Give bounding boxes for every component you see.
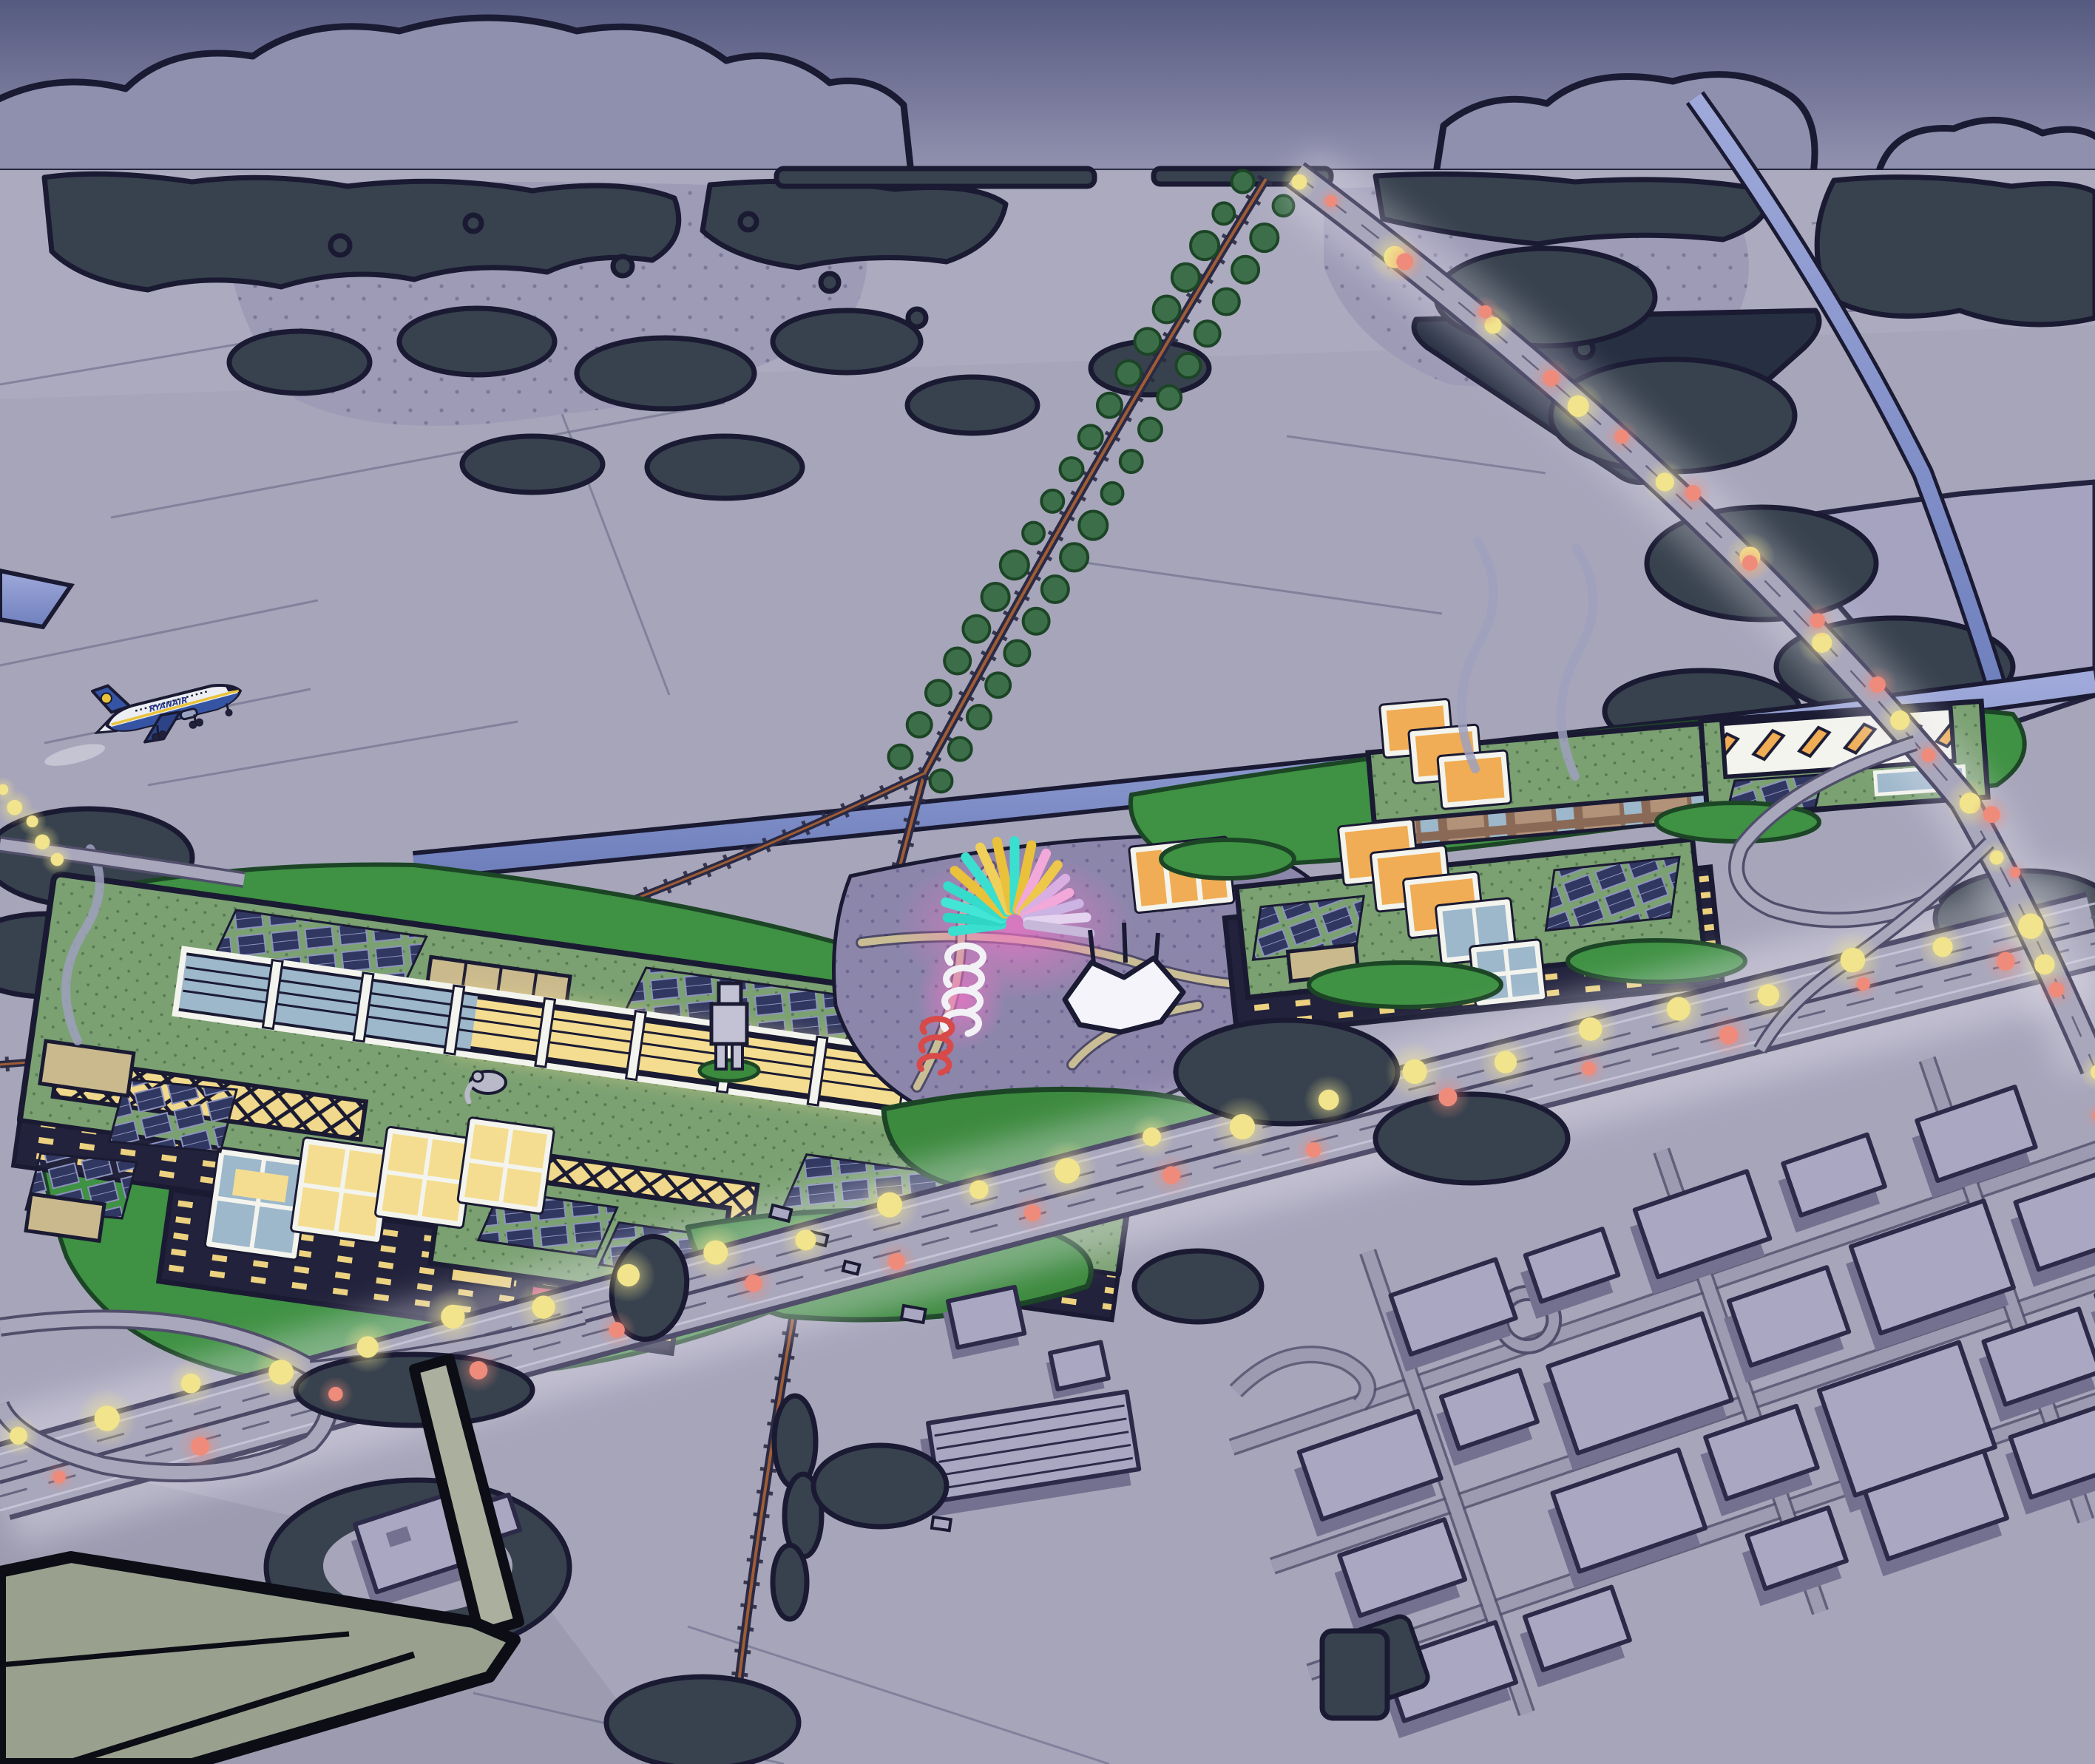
avenue-tree <box>1195 321 1220 346</box>
right-road-red-dot <box>1325 195 1337 207</box>
avenue-tree <box>967 705 991 729</box>
right-road-yellow-dot <box>1890 710 1909 730</box>
motorway-red-dot <box>1582 1062 1596 1076</box>
avenue-tree <box>1116 361 1141 386</box>
avenue-tree <box>1001 551 1029 579</box>
avenue-tree <box>1060 458 1083 481</box>
motorway-red-dot <box>1856 977 1869 991</box>
right-road-red-dot <box>1479 305 1492 319</box>
glass-cube <box>209 1152 306 1256</box>
avenue-tree <box>1041 490 1063 512</box>
junction-south-red-dot <box>2010 867 2020 878</box>
motorway-red-dot <box>745 1275 762 1292</box>
avenue-tree <box>1097 393 1122 418</box>
avenue-tree <box>1154 296 1180 323</box>
motorway-yellow-dot <box>1055 1158 1080 1183</box>
avenue-tree <box>1042 576 1069 603</box>
motorway-yellow-dot <box>1933 937 1953 957</box>
avenue-tree <box>944 648 970 674</box>
avenue-tree <box>1172 264 1199 291</box>
motorway-red-dot <box>470 1361 488 1380</box>
motorway-yellow-dot <box>181 1374 201 1394</box>
avenue-tree <box>1004 640 1029 665</box>
sky <box>0 0 2095 174</box>
avenue-tree <box>1176 353 1200 378</box>
avenue-tree <box>963 616 989 642</box>
motorway-yellow-dot <box>10 1427 27 1445</box>
right-road-red-dot <box>1685 485 1702 501</box>
motorway-red-dot <box>1162 1166 1180 1184</box>
avenue-tree <box>926 680 951 705</box>
avenue-tree <box>1191 231 1219 259</box>
motorway-red-dot <box>888 1253 905 1270</box>
motorway-yellow-dot <box>877 1193 902 1218</box>
junction-south-yellow-dot <box>1989 850 2003 864</box>
motorway-yellow-dot <box>1758 984 1780 1006</box>
avenue-tree <box>1157 386 1181 410</box>
avenue-tree <box>1023 608 1049 634</box>
motorway-yellow-dot <box>795 1229 816 1250</box>
avenue-tree <box>1213 203 1234 224</box>
motorway-yellow-dot <box>703 1241 728 1265</box>
avenue-tree <box>889 745 913 769</box>
motorway-yellow-dot <box>1403 1059 1427 1084</box>
glass-cube <box>461 1122 550 1210</box>
right-road-yellow-dot <box>1656 472 1674 491</box>
avenue-tree <box>949 738 972 761</box>
avenue-tree <box>1139 418 1162 441</box>
motorway-red-dot <box>1438 1088 1457 1106</box>
coil-glow <box>917 946 1006 1050</box>
motorway-red-dot <box>191 1437 209 1456</box>
motorway-yellow-dot <box>1143 1127 1161 1146</box>
motorway-yellow-dot <box>2018 914 2043 939</box>
motorway-yellow-dot <box>1495 1051 1517 1073</box>
motorway-yellow-dot <box>441 1305 464 1329</box>
right-road-red-dot <box>1983 806 2000 823</box>
right-road-red-dot <box>1922 748 1936 762</box>
avenue-tree <box>1120 450 1143 472</box>
glass-cube <box>295 1141 389 1239</box>
right-road-red-dot <box>1614 430 1628 444</box>
motorway-yellow-dot <box>969 1180 989 1199</box>
avenue-tree <box>1079 425 1103 449</box>
right-road-yellow-dot <box>1568 396 1589 417</box>
motorway-red-dot <box>328 1387 343 1402</box>
motorway-yellow-dot <box>268 1360 294 1385</box>
motorway-yellow-dot <box>1230 1114 1255 1139</box>
motorway-yellow-dot <box>617 1264 640 1286</box>
avenue-tree <box>982 583 1009 611</box>
right-road-red-dot <box>1543 370 1559 386</box>
glass-cube <box>379 1130 472 1224</box>
motorway-yellow-dot <box>1579 1017 1602 1041</box>
motorway-yellow-dot <box>95 1405 120 1431</box>
right-road-red-dot <box>1869 676 1886 693</box>
avenue-tree <box>1060 543 1088 571</box>
avenue-tree <box>1250 224 1278 251</box>
avenue-tree <box>1134 328 1160 354</box>
avenue-tree <box>930 770 952 792</box>
motorway-yellow-dot <box>532 1295 555 1318</box>
right-road-red-dot <box>1742 555 1758 571</box>
junction-south-yellow-dot <box>2034 954 2055 975</box>
right-road-red-dot <box>1810 613 1825 628</box>
motorway-red-dot <box>1306 1142 1321 1158</box>
motorway-yellow-dot <box>1319 1090 1339 1110</box>
motorway-red-dot <box>1719 1025 1738 1044</box>
right-road-red-dot <box>1396 254 1413 271</box>
avenue-tree <box>1232 257 1259 283</box>
motorway-red-dot <box>1997 952 2015 971</box>
motorway-yellow-dot <box>357 1336 379 1357</box>
avenue-tree <box>1023 523 1044 544</box>
avenue-tree <box>1232 171 1254 193</box>
avenue-tree <box>1214 289 1239 315</box>
west-edge-yellow-dot <box>51 853 64 866</box>
aerial-illustration: RYANAIR <box>0 0 2095 1764</box>
motorway-red-dot <box>609 1322 624 1337</box>
avenue-tree <box>907 713 932 737</box>
west-edge-yellow-dot <box>7 800 22 815</box>
motorway-yellow-dot <box>1667 997 1690 1020</box>
right-road-yellow-dot <box>1292 174 1307 190</box>
avenue-tree <box>986 673 1010 697</box>
motorway-red-dot <box>53 1470 66 1484</box>
west-edge-yellow-dot <box>35 835 50 849</box>
avenue-tree <box>1079 512 1107 540</box>
motorway-red-dot <box>1024 1204 1040 1221</box>
junction-south-red-dot <box>2049 982 2065 997</box>
avenue-tree <box>1102 483 1123 504</box>
